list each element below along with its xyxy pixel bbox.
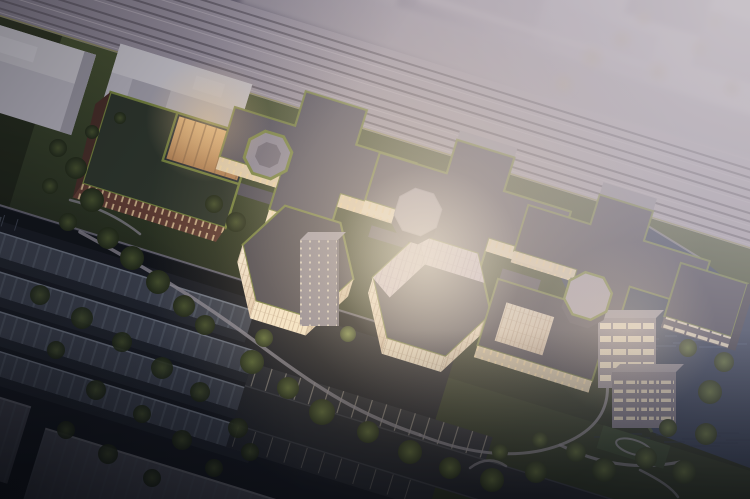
architectural-rendering [0,0,750,499]
vignette-corner [0,0,750,499]
rendering-canvas [0,0,750,499]
